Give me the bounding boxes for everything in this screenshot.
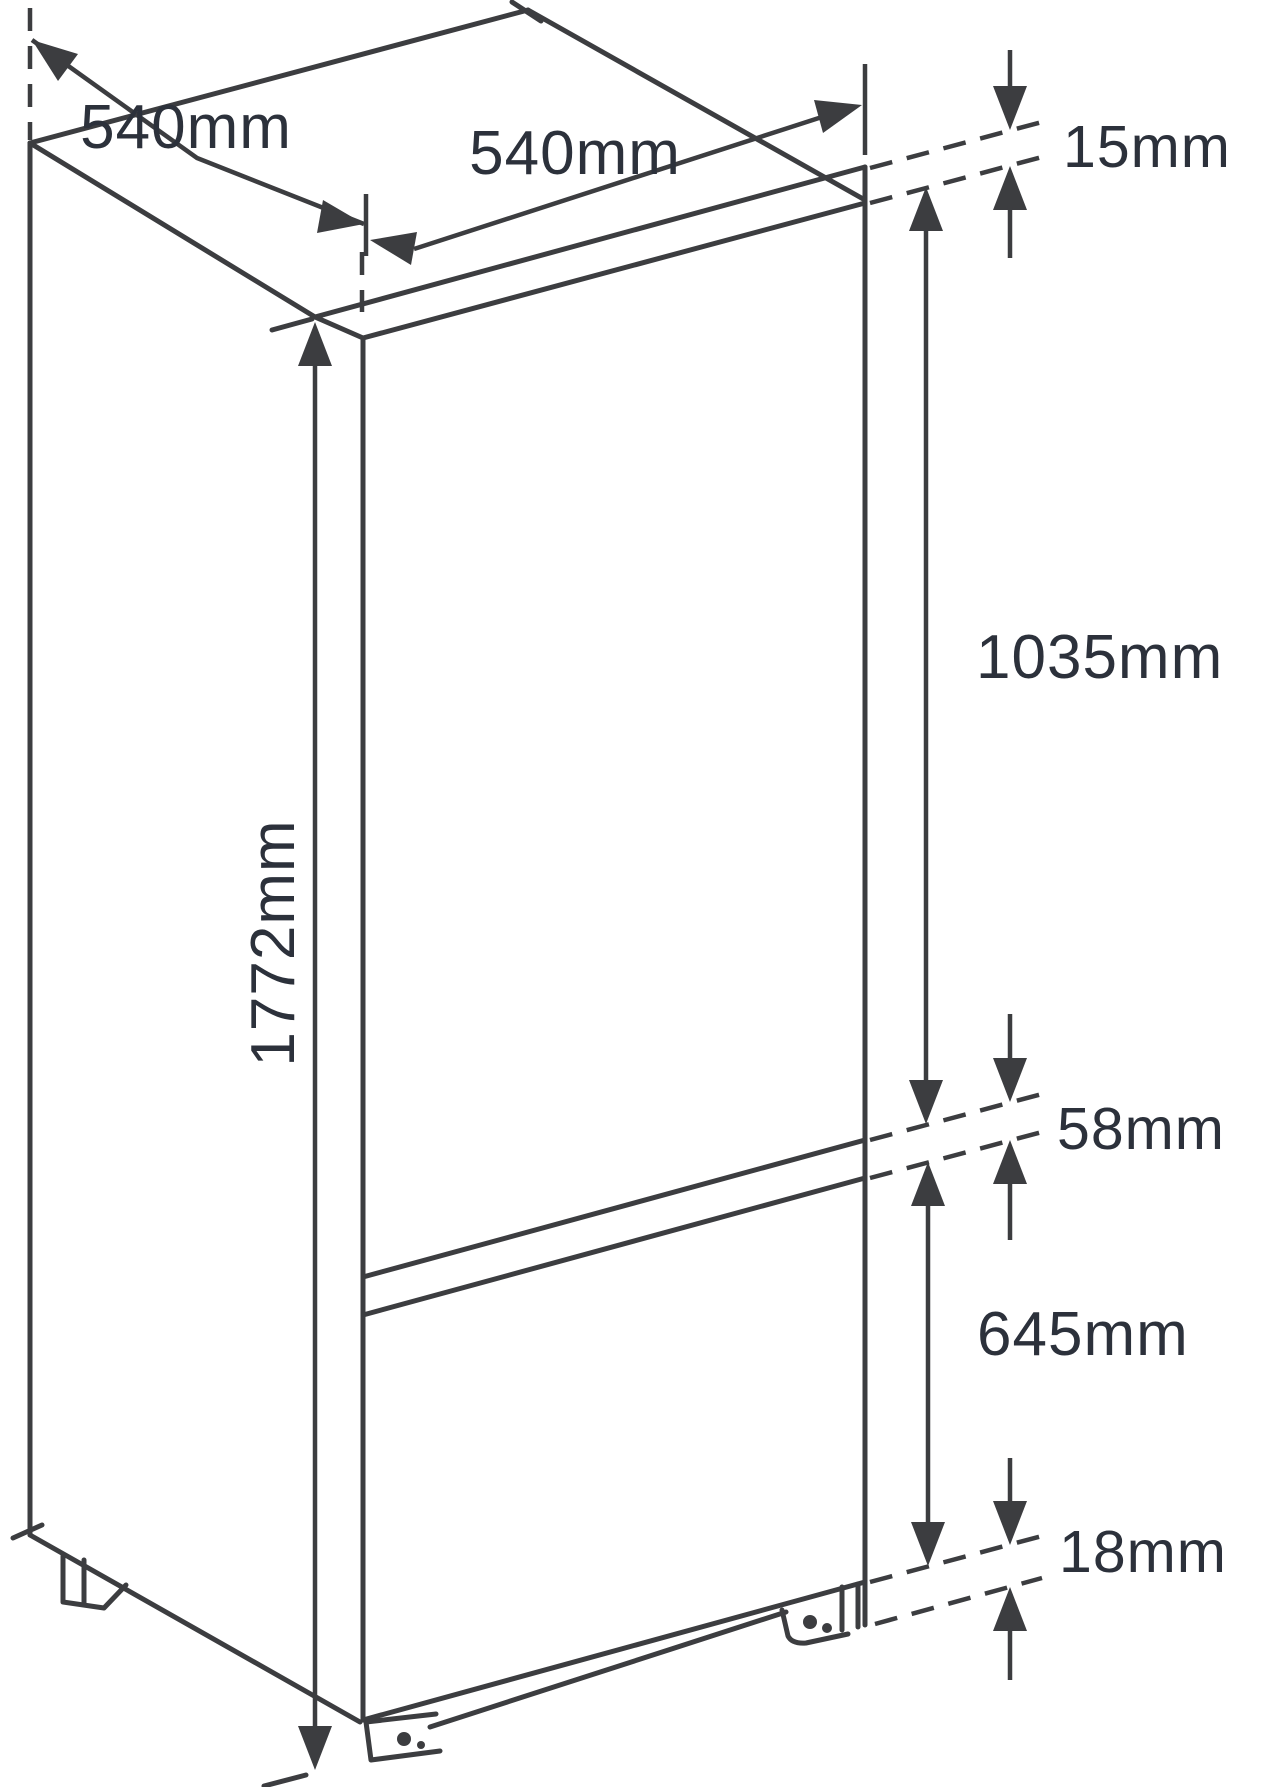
fridge-dimension-diagram: 540mm 540mm 1772mm 15mm 1035mm 58mm [0,0,1270,1787]
ext-height-bottom-tick [264,1775,306,1786]
dimension-lower-door: 645mm [911,1162,1189,1566]
height-arrow-down-icon [298,1726,332,1770]
dimension-depth: 540mm [32,40,366,256]
height-arrow-up-icon [298,322,332,366]
door-gap-lower-line [363,1178,865,1315]
dimension-overall-height: 1772mm [239,322,332,1770]
cabinet-outline [13,2,865,1727]
top-left-edge [30,143,315,317]
door-bottom-edge [363,1582,865,1720]
door-gap-arrow-up-icon [993,1140,1027,1184]
top-recess-arrow-down-icon [993,86,1027,130]
depth-arrow-up-left-icon [32,40,78,81]
ext-door-bottom [870,1536,1042,1582]
dimension-bottom-recess: 18mm [993,1458,1227,1680]
label-bottom-recess: 18mm [1059,1519,1227,1585]
front-left-corner-join [315,317,363,338]
top-recess-arrow-up-icon [993,166,1027,210]
width-arrow-left-icon [370,232,417,265]
door-gap-arrow-down-icon [993,1058,1027,1102]
label-depth: 540mm [80,93,292,162]
label-overall-height: 1772mm [239,819,308,1066]
right-bracket-screw [803,1615,817,1629]
front-left-foot-screw-small [417,1741,425,1749]
bottom-recess-arrow-down-icon [993,1501,1027,1545]
depth-arrow-down-right-icon [317,200,364,233]
upper-door-arrow-up-icon [909,187,943,231]
dimension-width: 540mm [370,100,862,265]
label-door-gap: 58mm [1057,1096,1225,1162]
dimension-top-recess: 15mm [993,50,1231,258]
feet [63,1556,858,1760]
dimension-door-gap: 58mm [993,1014,1225,1240]
left-bottom-rail [30,1535,360,1722]
ext-height-top-tick [272,319,312,330]
width-arrow-right-icon [814,100,862,133]
lower-door-arrow-up-icon [911,1162,945,1206]
plinth-line [430,1612,786,1727]
right-bracket-screw-small [822,1623,832,1633]
door-top-edge [363,203,865,338]
dimension-diagram-page: 540mm 540mm 1772mm 15mm 1035mm 58mm [0,0,1270,1787]
dimension-upper-door: 1035mm [909,187,1223,1124]
door-gap-upper-line [363,1140,865,1277]
ext-top-face-edge [870,122,1042,168]
label-top-recess: 15mm [1063,114,1231,180]
bottom-recess-arrow-up-icon [993,1587,1027,1631]
label-width: 540mm [469,119,681,188]
ext-upper-door-bottom [870,1094,1042,1140]
front-left-foot-screw [397,1732,411,1746]
label-upper-door: 1035mm [976,623,1223,692]
label-lower-door: 645mm [977,1300,1189,1369]
lower-door-arrow-down-icon [911,1522,945,1566]
upper-door-arrow-down-icon [909,1080,943,1124]
